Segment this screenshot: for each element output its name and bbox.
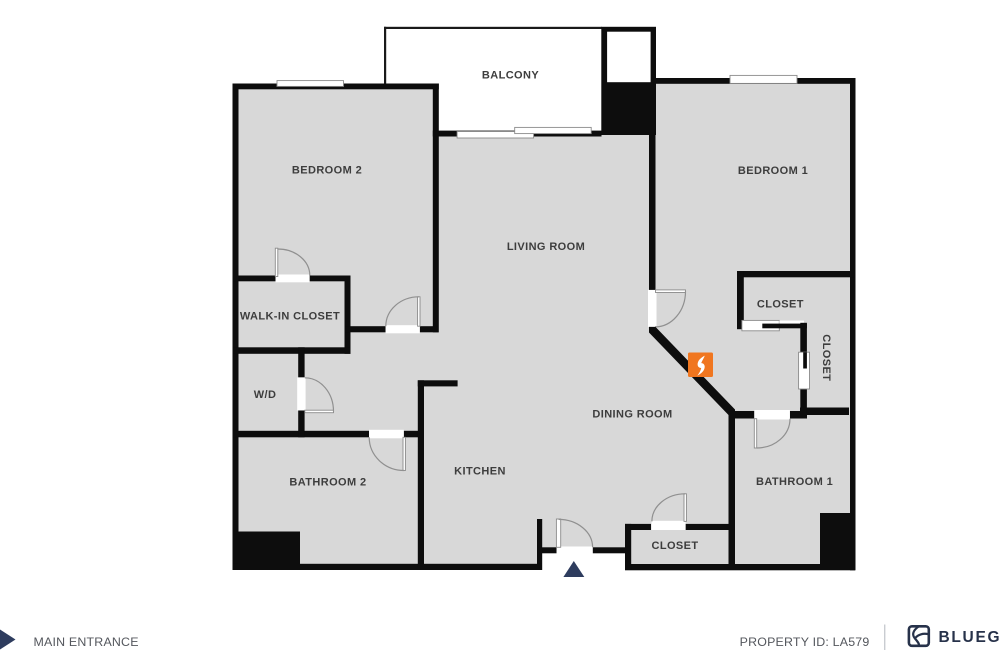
svg-text:KITCHEN: KITCHEN: [454, 466, 506, 478]
svg-text:DINING ROOM: DINING ROOM: [592, 409, 672, 421]
svg-text:CLOSET: CLOSET: [651, 540, 698, 552]
svg-text:W/D: W/D: [254, 389, 277, 401]
svg-text:BEDROOM 1: BEDROOM 1: [738, 165, 808, 177]
svg-text:BLUEGR: BLUEGR: [939, 629, 1000, 646]
svg-text:WALK-IN CLOSET: WALK-IN CLOSET: [240, 311, 340, 323]
svg-text:CLOSET: CLOSET: [820, 334, 832, 381]
svg-text:CLOSET: CLOSET: [757, 299, 804, 311]
svg-text:MAIN ENTRANCE: MAIN ENTRANCE: [34, 635, 139, 649]
svg-text:BALCONY: BALCONY: [482, 70, 539, 82]
svg-text:PROPERTY ID: LA579: PROPERTY ID: LA579: [740, 635, 870, 649]
svg-text:BATHROOM 2: BATHROOM 2: [289, 477, 366, 489]
svg-text:BEDROOM 2: BEDROOM 2: [292, 165, 362, 177]
svg-text:BATHROOM 1: BATHROOM 1: [756, 476, 833, 488]
svg-text:LIVING ROOM: LIVING ROOM: [507, 241, 585, 253]
